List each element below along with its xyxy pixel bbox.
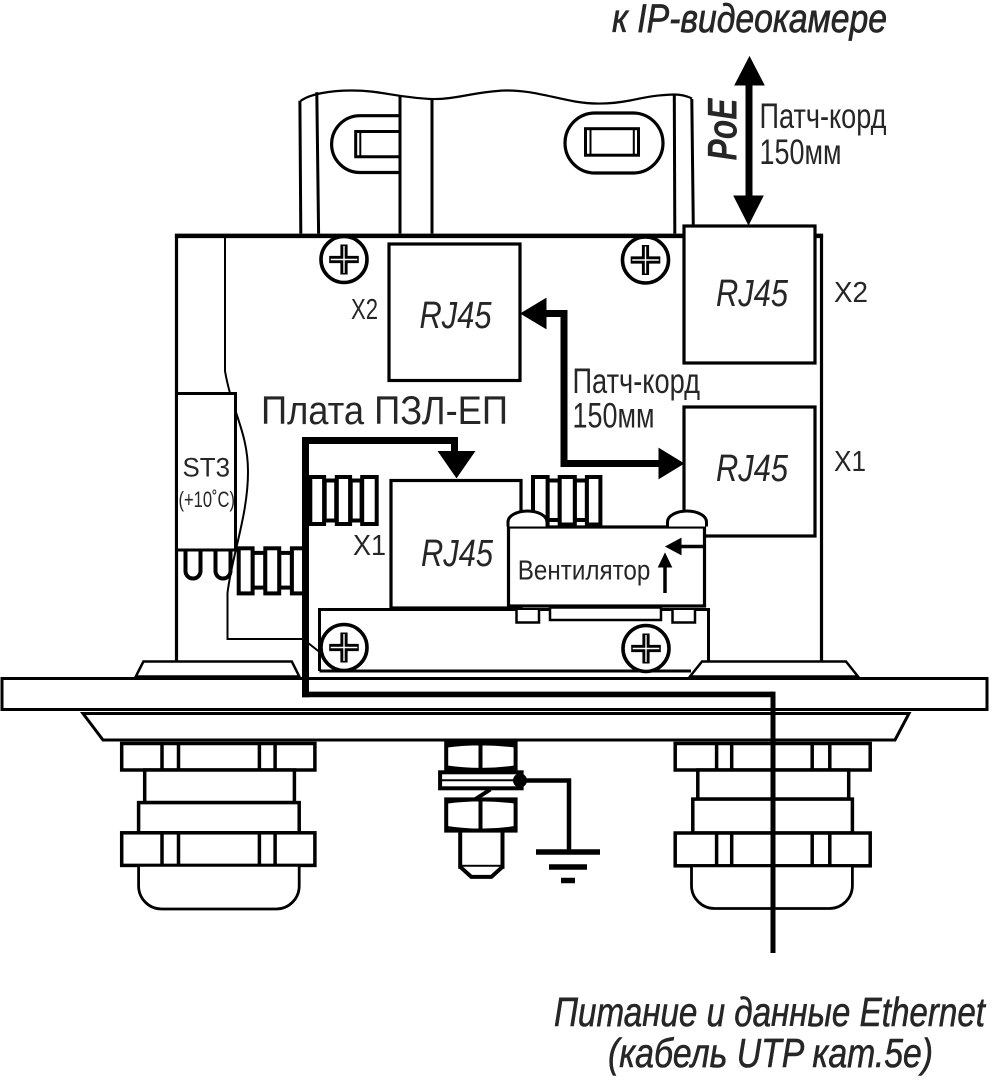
svg-text:RJ45: RJ45 xyxy=(716,273,789,315)
svg-text:150мм: 150мм xyxy=(760,133,842,172)
svg-text:Патч-корд: Патч-корд xyxy=(573,362,701,401)
svg-text:к IP-видеокамере: к IP-видеокамере xyxy=(612,0,887,41)
svg-text:RJ45: RJ45 xyxy=(716,448,789,490)
svg-text:RJ45: RJ45 xyxy=(420,295,493,337)
svg-text:Патч-корд: Патч-корд xyxy=(760,97,887,136)
svg-text:Вентилятор: Вентилятор xyxy=(518,555,651,586)
svg-text:X2: X2 xyxy=(834,277,868,309)
svg-text:150мм: 150мм xyxy=(573,397,655,436)
svg-text:X1: X1 xyxy=(353,530,386,562)
svg-text:RJ45: RJ45 xyxy=(421,533,494,575)
svg-text:ST3: ST3 xyxy=(183,453,231,483)
svg-text:(кабель UTP кат.5е): (кабель UTP кат.5е) xyxy=(608,1030,933,1076)
svg-text:PoE: PoE xyxy=(699,97,746,161)
svg-text:X1: X1 xyxy=(834,446,866,478)
svg-text:Плата ПЗЛ-ЕП: Плата ПЗЛ-ЕП xyxy=(261,389,508,433)
svg-text:X2: X2 xyxy=(351,294,378,326)
svg-text:Питание и данные Ethernet: Питание и данные Ethernet xyxy=(554,989,986,1035)
svg-text:(+10˚C): (+10˚C) xyxy=(179,487,236,512)
